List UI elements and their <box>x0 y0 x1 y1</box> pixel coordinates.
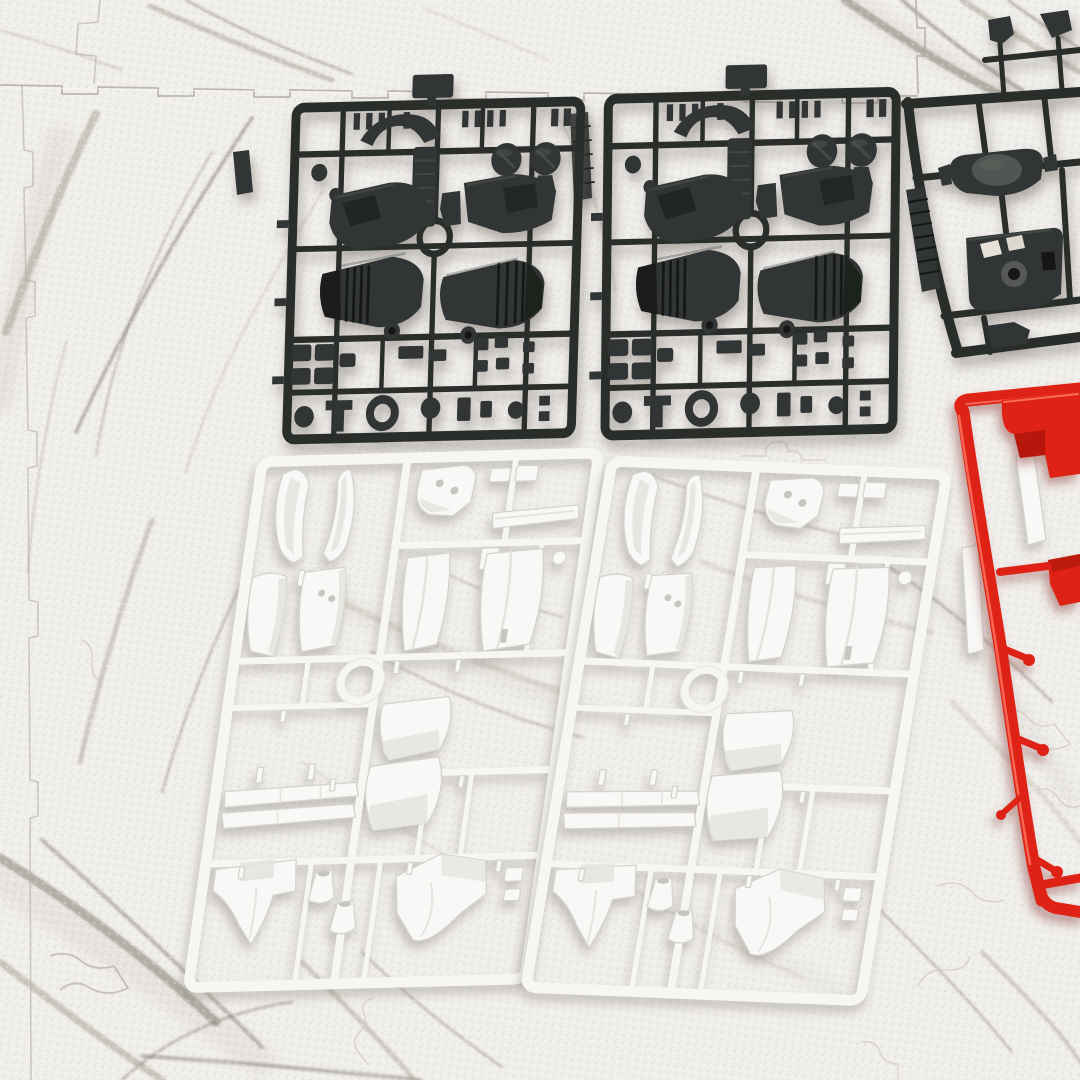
photo-stage: Top-down photograph of plastic model kit… <box>0 0 1080 1080</box>
photo-canvas <box>0 0 1080 1080</box>
chest-plate-part <box>966 228 1063 311</box>
